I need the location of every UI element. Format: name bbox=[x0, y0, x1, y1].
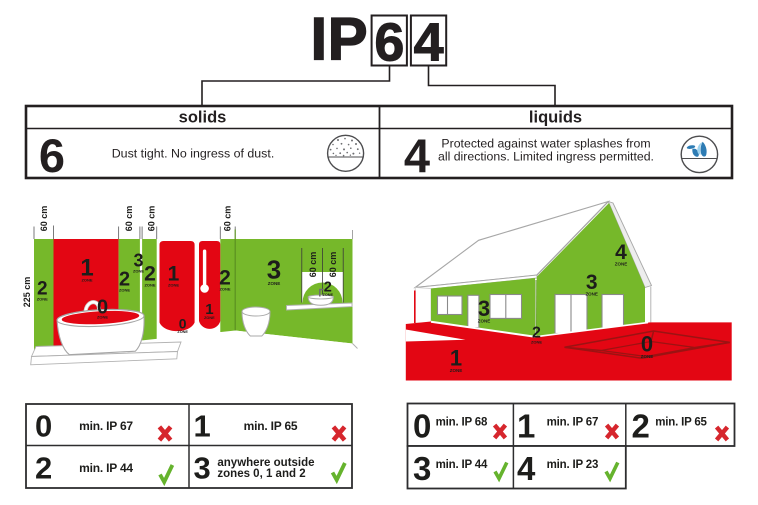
svg-text:ZONE: ZONE bbox=[133, 269, 144, 274]
svg-text:IP: IP bbox=[311, 6, 369, 73]
svg-text:Protected against water splash: Protected against water splashes from bbox=[441, 137, 650, 151]
svg-text:all directions. Limited ingres: all directions. Limited ingress permitte… bbox=[438, 150, 654, 164]
svg-text:0: 0 bbox=[413, 408, 431, 445]
svg-text:4: 4 bbox=[414, 13, 444, 73]
svg-text:1: 1 bbox=[517, 408, 535, 445]
svg-text:ZONE: ZONE bbox=[119, 288, 130, 293]
svg-text:60 cm: 60 cm bbox=[147, 206, 157, 232]
svg-text:6: 6 bbox=[374, 13, 404, 73]
svg-text:3: 3 bbox=[413, 450, 431, 487]
svg-text:min. IP 65: min. IP 65 bbox=[244, 419, 298, 433]
svg-text:liquids: liquids bbox=[529, 109, 582, 127]
svg-text:ZONE: ZONE bbox=[323, 293, 334, 297]
svg-text:anywhere outside: anywhere outside bbox=[217, 457, 314, 469]
svg-text:1: 1 bbox=[194, 409, 211, 444]
svg-text:0: 0 bbox=[641, 332, 653, 357]
svg-text:ZONE: ZONE bbox=[204, 316, 215, 320]
svg-text:ZONE: ZONE bbox=[37, 297, 48, 302]
svg-text:3: 3 bbox=[267, 255, 281, 285]
svg-text:60 cm: 60 cm bbox=[308, 252, 318, 278]
svg-text:ZONE: ZONE bbox=[450, 368, 463, 373]
svg-text:min. IP 44: min. IP 44 bbox=[79, 461, 133, 475]
svg-text:60 cm: 60 cm bbox=[328, 252, 338, 278]
svg-text:solids: solids bbox=[179, 109, 227, 127]
svg-text:ZONE: ZONE bbox=[97, 315, 108, 320]
svg-text:ZONE: ZONE bbox=[219, 287, 230, 292]
svg-text:2: 2 bbox=[35, 451, 52, 486]
svg-text:ZONE: ZONE bbox=[585, 292, 598, 297]
svg-text:ZONE: ZONE bbox=[531, 340, 542, 345]
svg-text:60 cm: 60 cm bbox=[39, 206, 49, 232]
svg-text:min. IP 65: min. IP 65 bbox=[655, 417, 707, 429]
svg-text:min. IP 68: min. IP 68 bbox=[436, 417, 488, 429]
svg-text:ZONE: ZONE bbox=[268, 281, 281, 286]
svg-text:0: 0 bbox=[35, 409, 52, 444]
svg-text:Dust tight. No ingress of dust: Dust tight. No ingress of dust. bbox=[112, 147, 275, 161]
svg-text:min. IP 44: min. IP 44 bbox=[436, 459, 488, 471]
svg-text:ZONE: ZONE bbox=[615, 262, 628, 267]
svg-text:zones 0, 1 and 2: zones 0, 1 and 2 bbox=[217, 468, 305, 480]
svg-text:3: 3 bbox=[133, 251, 143, 271]
svg-text:3: 3 bbox=[194, 451, 211, 486]
svg-text:6: 6 bbox=[39, 129, 65, 182]
svg-text:min. IP 67: min. IP 67 bbox=[547, 417, 598, 429]
svg-text:ZONE: ZONE bbox=[168, 283, 179, 288]
svg-text:60 cm: 60 cm bbox=[124, 206, 134, 232]
svg-text:60 cm: 60 cm bbox=[223, 206, 233, 232]
svg-text:min. IP 23: min. IP 23 bbox=[547, 459, 598, 471]
svg-text:4: 4 bbox=[517, 450, 536, 487]
svg-text:3: 3 bbox=[478, 296, 490, 321]
svg-text:ZONE: ZONE bbox=[641, 354, 654, 359]
svg-text:4: 4 bbox=[404, 129, 430, 182]
svg-text:ZONE: ZONE bbox=[177, 330, 188, 334]
svg-text:ZONE: ZONE bbox=[81, 278, 92, 283]
svg-text:ZONE: ZONE bbox=[144, 283, 155, 288]
svg-text:2: 2 bbox=[632, 408, 650, 445]
svg-text:225 cm: 225 cm bbox=[22, 277, 32, 308]
svg-text:ZONE: ZONE bbox=[478, 319, 491, 324]
svg-text:1: 1 bbox=[450, 346, 462, 371]
svg-text:min. IP 67: min. IP 67 bbox=[79, 419, 133, 433]
